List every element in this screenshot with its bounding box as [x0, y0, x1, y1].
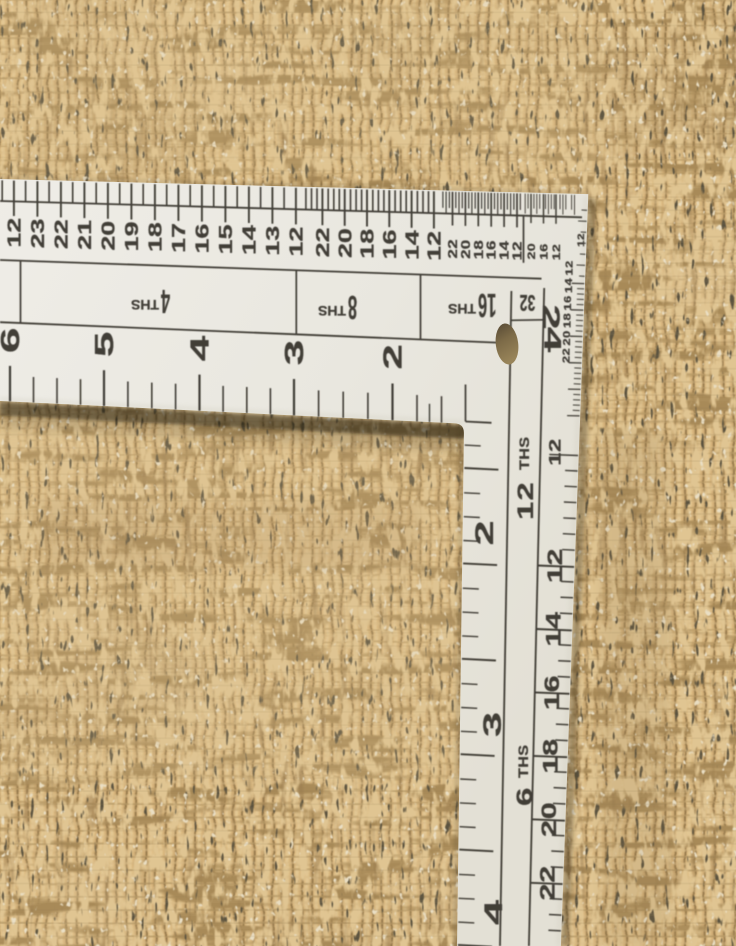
svg-text:16: 16 — [478, 287, 496, 325]
svg-text:16: 16 — [379, 230, 400, 260]
svg-text:17: 17 — [168, 223, 189, 253]
svg-text:16: 16 — [539, 675, 563, 710]
svg-text:22: 22 — [447, 239, 460, 258]
svg-text:16: 16 — [537, 243, 550, 259]
svg-text:12: 12 — [550, 244, 563, 260]
svg-text:14: 14 — [541, 611, 565, 646]
svg-text:12: 12 — [286, 227, 307, 257]
svg-text:4: 4 — [479, 899, 507, 925]
svg-text:3: 3 — [280, 340, 309, 366]
svg-text:5: 5 — [90, 332, 119, 358]
svg-text:16: 16 — [563, 295, 573, 310]
svg-text:18: 18 — [145, 222, 166, 252]
svg-text:22: 22 — [312, 227, 333, 257]
svg-text:22: 22 — [51, 219, 72, 249]
svg-text:20: 20 — [98, 221, 119, 251]
svg-text:20: 20 — [537, 802, 561, 837]
svg-text:19: 19 — [121, 221, 142, 251]
svg-text:2: 2 — [378, 344, 407, 370]
svg-text:2: 2 — [470, 520, 498, 545]
svg-text:4: 4 — [161, 283, 170, 321]
svg-text:12: 12 — [4, 218, 25, 248]
svg-text:18: 18 — [538, 738, 562, 773]
svg-text:12: 12 — [513, 481, 537, 520]
svg-text:14: 14 — [239, 225, 260, 255]
svg-text:13: 13 — [262, 226, 283, 256]
svg-text:15: 15 — [215, 224, 236, 254]
svg-text:12: 12 — [424, 231, 445, 261]
svg-text:22: 22 — [535, 865, 559, 900]
svg-text:14: 14 — [498, 240, 511, 260]
svg-text:14: 14 — [401, 230, 422, 260]
svg-text:32: 32 — [520, 289, 536, 316]
svg-text:18: 18 — [357, 229, 378, 259]
svg-text:THS: THS — [448, 301, 476, 317]
svg-text:16: 16 — [486, 240, 499, 259]
svg-text:12: 12 — [546, 438, 565, 466]
svg-text:3: 3 — [478, 712, 506, 737]
svg-text:THS: THS — [131, 297, 159, 313]
svg-text:6: 6 — [0, 328, 25, 354]
svg-text:THS: THS — [517, 745, 531, 778]
svg-text:16: 16 — [192, 224, 213, 254]
svg-text:4: 4 — [539, 327, 566, 353]
svg-text:12: 12 — [542, 548, 566, 583]
svg-text:8: 8 — [348, 289, 357, 327]
svg-text:20: 20 — [335, 228, 356, 258]
svg-text:12: 12 — [577, 233, 586, 247]
svg-text:THS: THS — [318, 303, 346, 319]
svg-text:12: 12 — [565, 260, 575, 275]
svg-text:18: 18 — [473, 240, 486, 259]
svg-text:6: 6 — [512, 787, 536, 806]
svg-text:4: 4 — [185, 335, 214, 361]
svg-text:20: 20 — [525, 243, 538, 259]
svg-text:21: 21 — [74, 220, 95, 250]
svg-text:23: 23 — [27, 219, 48, 249]
svg-text:14: 14 — [564, 278, 574, 293]
svg-text:20: 20 — [460, 240, 473, 259]
svg-text:THS: THS — [518, 437, 532, 470]
